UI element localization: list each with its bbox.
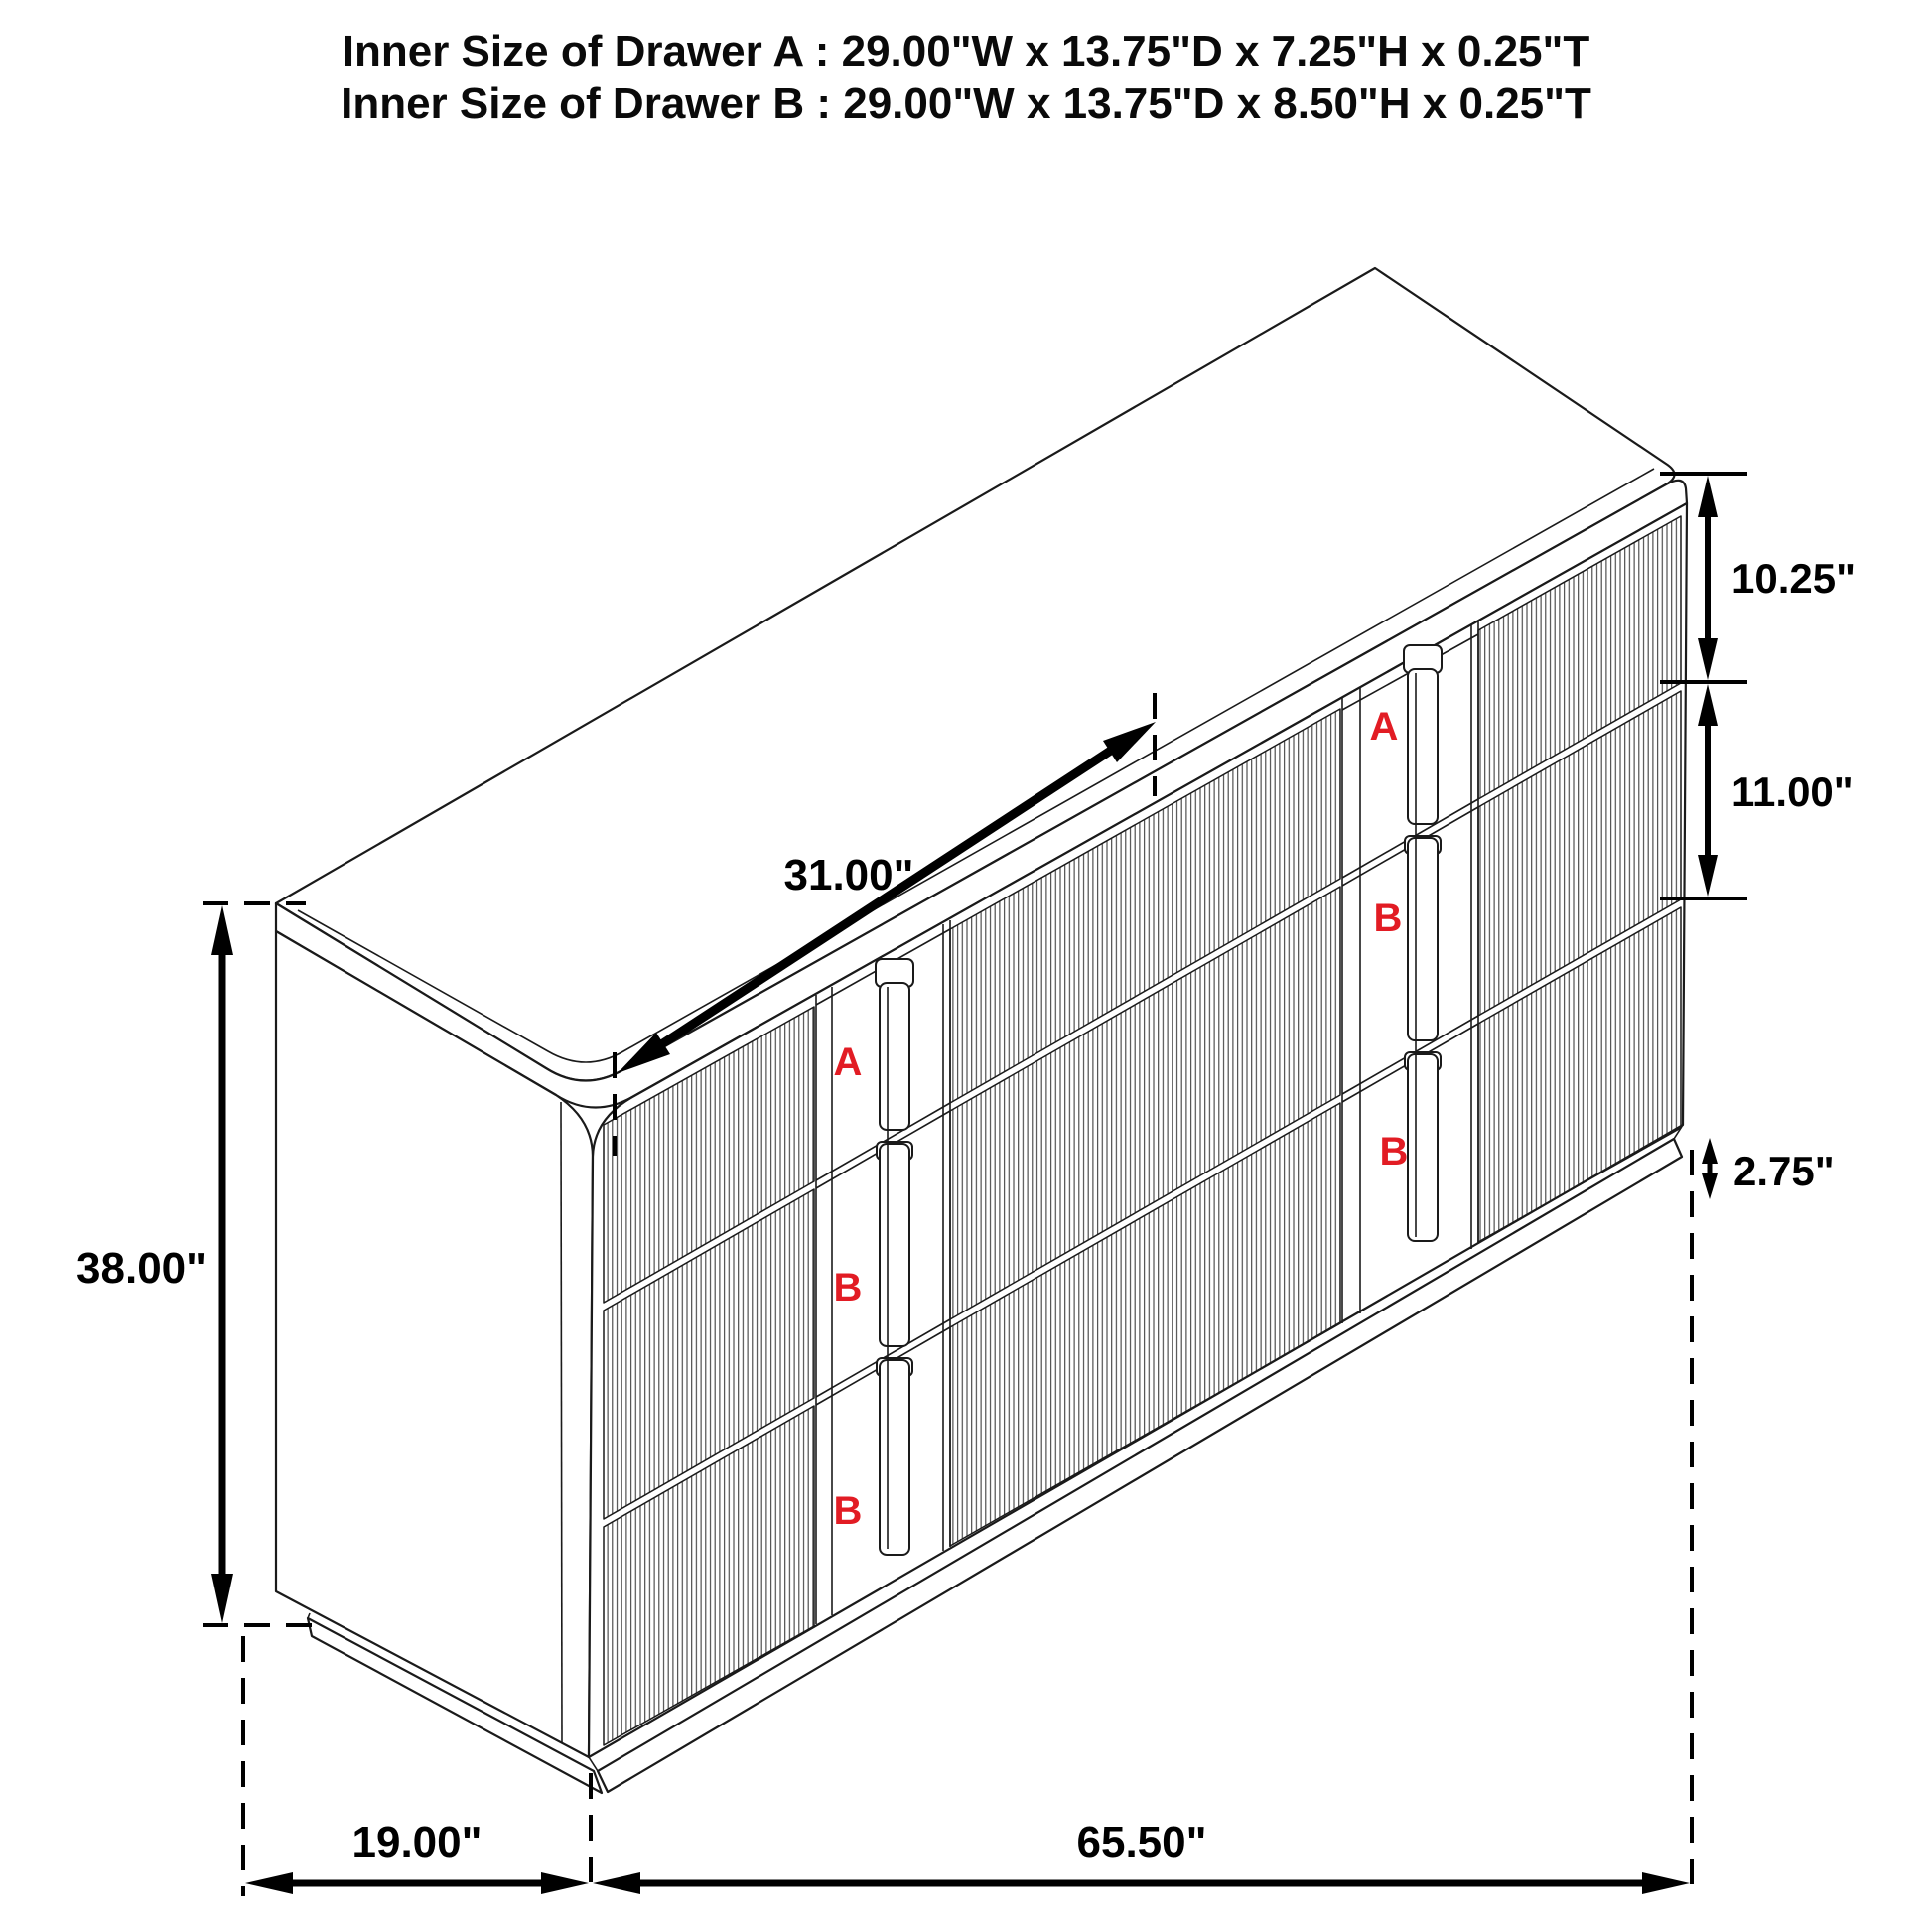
dimension-label-depth: 19.00" <box>352 1818 483 1866</box>
drawer-letter-left-a: A <box>834 1040 863 1084</box>
handle-segment <box>880 983 909 1130</box>
handle-segment <box>880 1144 909 1346</box>
drawer-bank-right-fluting <box>1478 516 1681 1242</box>
drawer-letter-left-b2: B <box>834 1489 863 1533</box>
drawer-handle-right <box>1404 645 1442 1241</box>
handle-segment <box>1408 1054 1438 1241</box>
handle-segment <box>880 1360 909 1555</box>
handle-segment <box>1408 838 1438 1040</box>
drawer-letter-right-a: A <box>1370 705 1399 749</box>
dresser-dimension-diagram: A B B A B B 38.00" 19.00" <box>0 0 1932 1932</box>
dimension-label-middle-drawer-height: 11.00" <box>1731 768 1854 815</box>
title-line-2: Inner Size of Drawer B : 29.00"W x 13.75… <box>341 79 1591 128</box>
drawer-letter-right-b2: B <box>1380 1130 1409 1173</box>
drawer-handle-left <box>876 959 913 1555</box>
front-left-corner-highlight <box>561 1102 562 1743</box>
title-line-1: Inner Size of Drawer A : 29.00"W x 13.75… <box>343 27 1590 75</box>
dimension-label-total-height: 38.00" <box>76 1244 207 1293</box>
drawer-bank-left-fluting <box>604 1007 814 1745</box>
dimension-label-total-width: 65.50" <box>1077 1818 1207 1866</box>
drawer-letter-left-b1: B <box>834 1266 863 1310</box>
handle-segment <box>1408 669 1438 824</box>
dimension-label-top-drawer-height: 10.25" <box>1731 555 1856 602</box>
dresser-dimension-diagram-page: A B B A B B 38.00" 19.00" <box>0 0 1932 1932</box>
drawer-letter-right-b1: B <box>1374 897 1403 940</box>
dimension-label-opening-width: 31.00" <box>784 851 914 899</box>
dimension-label-base-height: 2.75" <box>1733 1148 1835 1194</box>
